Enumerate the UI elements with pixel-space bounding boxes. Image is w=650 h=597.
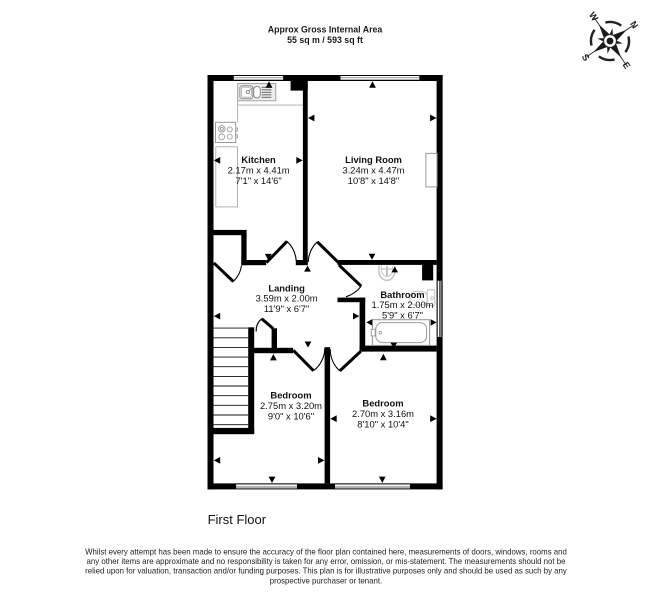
svg-text:Bedroom: Bedroom [362, 397, 403, 408]
svg-text:Bedroom: Bedroom [270, 390, 311, 401]
svg-text:2.17m x 4.41m: 2.17m x 4.41m [228, 165, 290, 176]
svg-text:Approx Gross Internal Area: Approx Gross Internal Area [268, 24, 383, 34]
svg-text:any other items are approximat: any other items are approximate and no r… [87, 557, 567, 566]
svg-text:3.24m x 4.47m: 3.24m x 4.47m [342, 164, 404, 175]
svg-text:11'9" x 6'7": 11'9" x 6'7" [264, 303, 310, 314]
svg-text:Whilst every attempt has been: Whilst every attempt has been made to en… [85, 547, 567, 556]
svg-text:2.75m x 3.20m: 2.75m x 3.20m [260, 400, 322, 411]
svg-text:8'10" x 10'4": 8'10" x 10'4" [357, 418, 408, 429]
svg-text:Kitchen: Kitchen [241, 154, 276, 165]
svg-text:9'0" x 10'6": 9'0" x 10'6" [268, 411, 314, 422]
svg-text:10'8" x 14'8": 10'8" x 14'8" [348, 175, 399, 186]
svg-text:Landing: Landing [268, 282, 305, 293]
svg-text:prospective purchaser or tenan: prospective purchaser or tenant. [270, 576, 383, 585]
svg-text:5'9" x 6'7": 5'9" x 6'7" [382, 309, 423, 320]
svg-text:55 sq m / 593 sq ft: 55 sq m / 593 sq ft [287, 35, 363, 45]
svg-text:Living Room: Living Room [345, 154, 402, 165]
svg-text:relied upon for valuation, tra: relied upon for valuation, transaction a… [85, 567, 567, 576]
svg-text:First Floor: First Floor [208, 512, 267, 527]
svg-text:7'1" x 14'6": 7'1" x 14'6" [235, 175, 281, 186]
svg-text:3.59m x 2.00m: 3.59m x 2.00m [256, 293, 318, 304]
svg-text:2.70m x 3.16m: 2.70m x 3.16m [352, 408, 414, 419]
